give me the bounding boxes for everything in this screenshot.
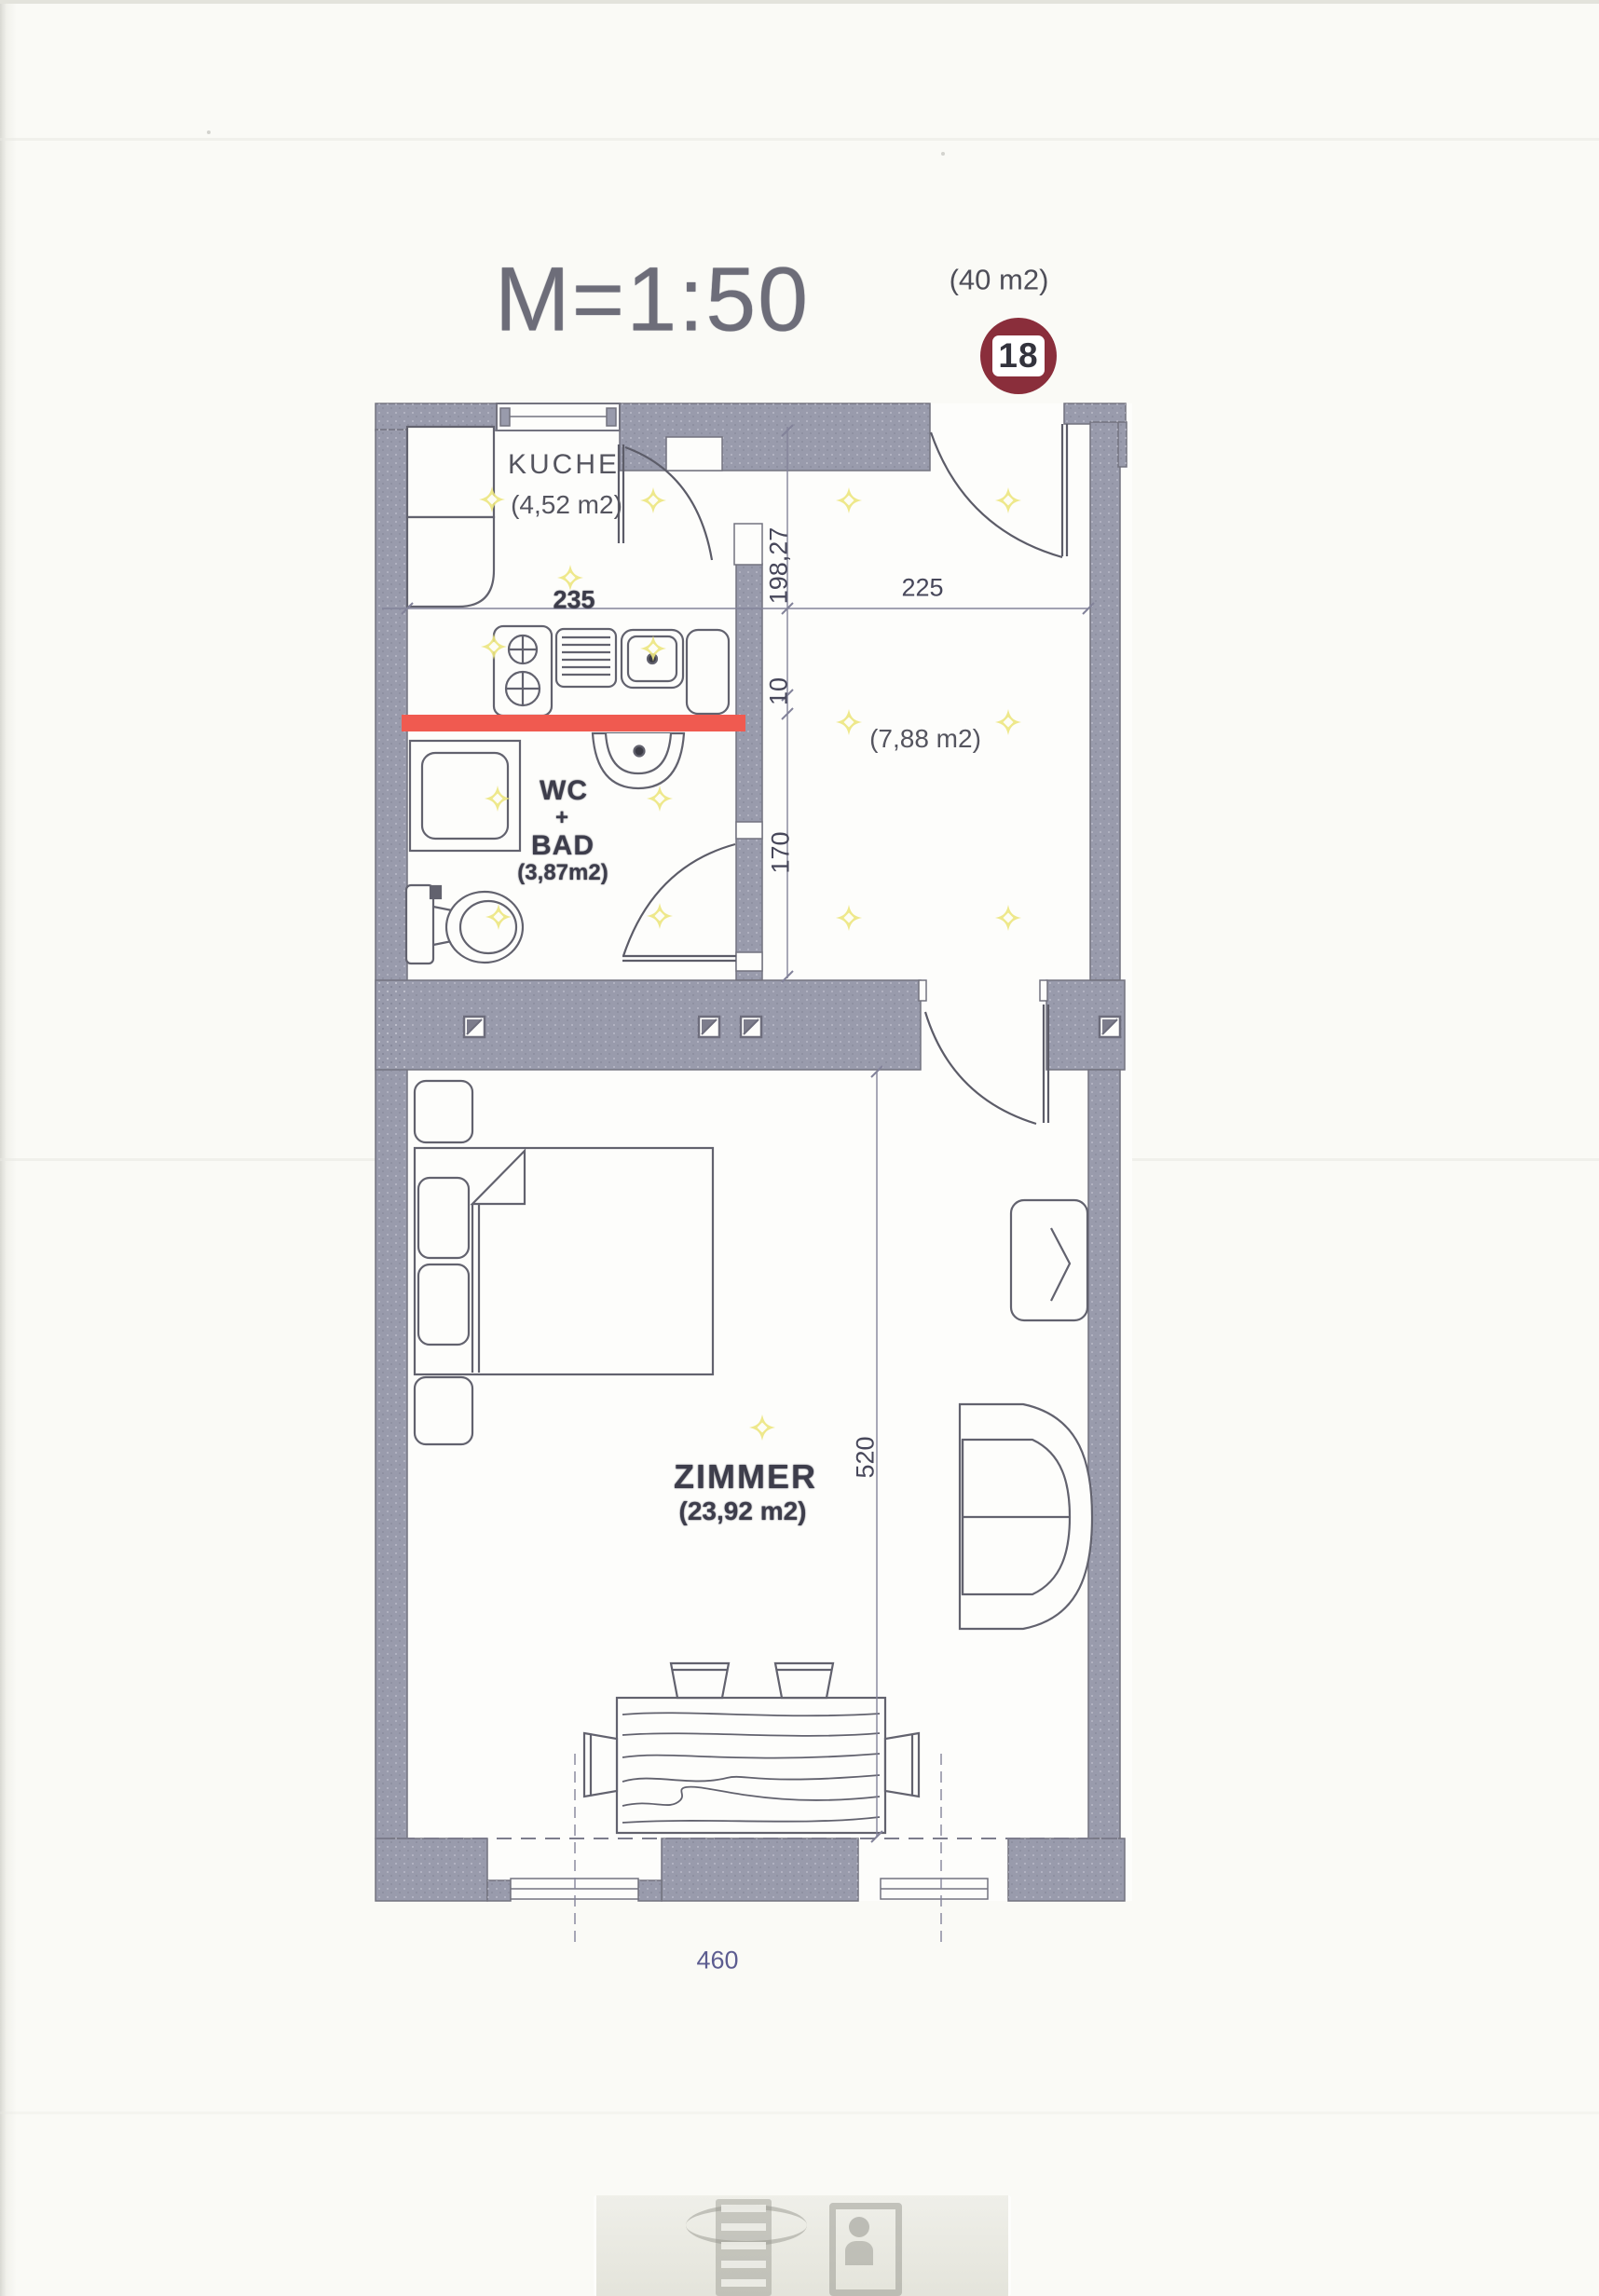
room-label-zimmer: ZIMMER	[674, 1460, 817, 1494]
scan-bleed-through	[594, 2195, 1011, 2296]
dim-bad-depth: 170	[769, 831, 794, 873]
sofa	[960, 1404, 1092, 1629]
chair	[885, 1733, 919, 1797]
chair	[671, 1663, 729, 1698]
room-label-kueche: KUCHE	[508, 451, 620, 479]
nightstand	[415, 1377, 472, 1444]
room-area-kueche: (4,52 m2)	[511, 492, 622, 518]
pillow	[418, 1178, 469, 1258]
portrait-frame-icon	[829, 2203, 902, 2296]
total-area-label: (40 m2)	[950, 266, 1049, 294]
unit-number-badge: 18	[980, 318, 1057, 394]
kitchen-window	[497, 403, 620, 430]
dim-wall-thickness: 10	[767, 677, 792, 705]
nightstand	[415, 1081, 472, 1142]
dim-kueche-width: 235	[553, 588, 594, 613]
dining-table	[617, 1698, 885, 1833]
unit-number-plate: 18	[992, 335, 1045, 376]
dim-zimmer-depth: 520	[854, 1436, 879, 1478]
room-area-zimmer: (23,92 m2)	[679, 1498, 807, 1524]
dim-zimmer-width: 460	[696, 1948, 738, 1974]
dim-kueche-depth: 198,27	[767, 527, 792, 605]
room-area-bad: (3,87m2)	[517, 862, 608, 884]
red-marker-line	[402, 715, 745, 731]
chair	[584, 1733, 617, 1797]
dim-vorraum-width: 225	[901, 576, 943, 601]
pillow	[418, 1264, 469, 1345]
room-area-vorraum: (7,88 m2)	[869, 726, 981, 752]
film-strip-icon	[716, 2199, 772, 2296]
unit-number: 18	[998, 336, 1038, 376]
room-label-bad: BAD	[531, 832, 594, 860]
toilet-tank	[406, 885, 433, 963]
dresser	[1011, 1200, 1087, 1320]
scanned-page: M=1:50 (40 m2) 18 KUCHE (4,52 m2) WC + B…	[0, 0, 1599, 2296]
room-label-plus: +	[555, 807, 568, 829]
chair	[775, 1663, 833, 1698]
room-label-wc: WC	[540, 777, 588, 805]
scale-title: M=1:50	[495, 254, 810, 345]
